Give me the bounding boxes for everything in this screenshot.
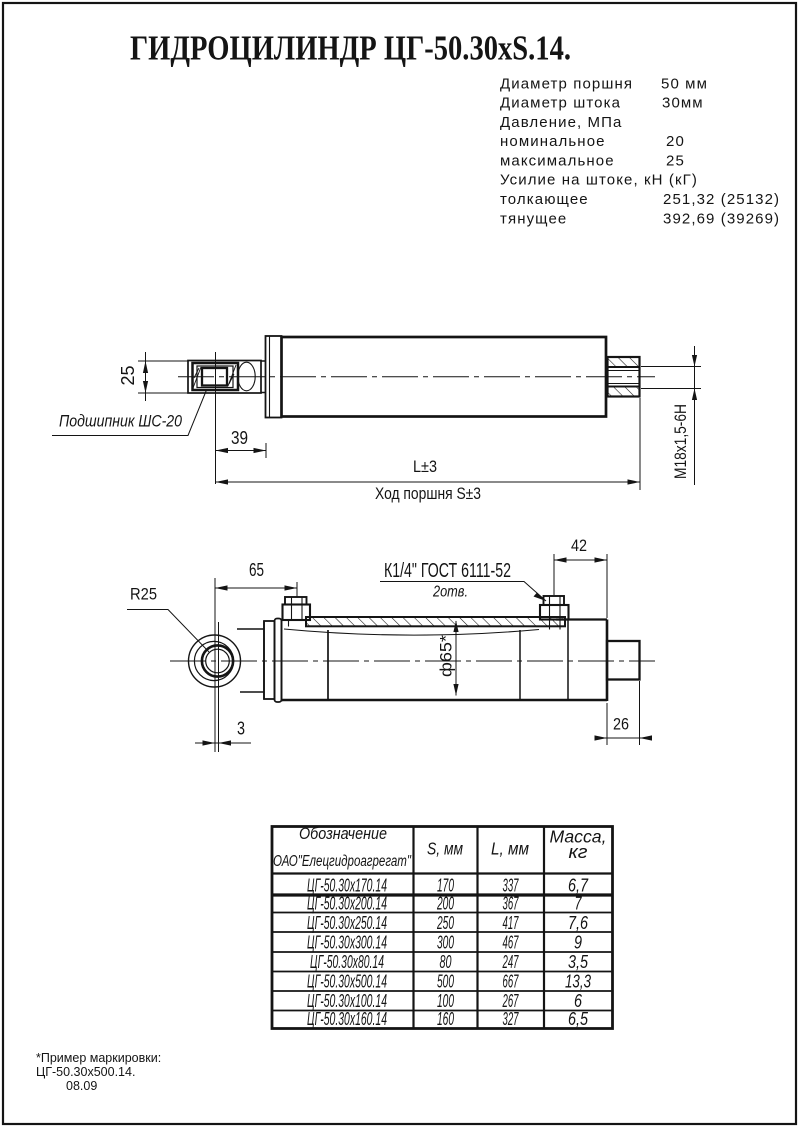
svg-text:300: 300 <box>437 933 454 953</box>
svg-text:ГИДРОЦИЛИНДР ЦГ-50.30xS.14.: ГИДРОЦИЛИНДР ЦГ-50.30xS.14. <box>130 29 571 68</box>
svg-text:*Пример маркировки:: *Пример маркировки: <box>36 1051 161 1065</box>
svg-text:R25: R25 <box>130 585 157 604</box>
svg-text:максимальное: максимальное <box>500 153 615 170</box>
svg-text:ЦГ-50.30х170.14: ЦГ-50.30х170.14 <box>307 876 387 896</box>
svg-text:3,5: 3,5 <box>568 952 589 972</box>
svg-text:6,7: 6,7 <box>568 876 589 896</box>
svg-text:392,69 (39269): 392,69 (39269) <box>663 210 780 227</box>
svg-text:ЦГ-50.30х80.14: ЦГ-50.30х80.14 <box>310 952 384 972</box>
svg-text:667: 667 <box>503 972 520 992</box>
svg-text:М18х1,5-6Н: М18х1,5-6Н <box>672 404 690 479</box>
svg-text:Подшипник ШС-20: Подшипник ШС-20 <box>59 413 183 431</box>
svg-text:100: 100 <box>437 991 454 1011</box>
svg-text:6: 6 <box>574 991 583 1011</box>
svg-text:Диаметр штока: Диаметр штока <box>500 95 621 112</box>
svg-text:467: 467 <box>503 933 520 953</box>
svg-text:6,5: 6,5 <box>568 1009 589 1029</box>
svg-text:417: 417 <box>503 913 520 933</box>
svg-text:200: 200 <box>436 894 454 914</box>
svg-text:20: 20 <box>666 133 685 150</box>
svg-text:65: 65 <box>249 560 264 580</box>
svg-text:Диаметр поршня: Диаметр поршня <box>500 76 633 93</box>
svg-text:Давление, МПа: Давление, МПа <box>500 114 622 131</box>
svg-text:кг: кг <box>569 842 588 862</box>
svg-text:25: 25 <box>666 153 685 170</box>
svg-text:L, мм: L, мм <box>491 839 529 859</box>
svg-text:251,32 (25132): 251,32 (25132) <box>663 191 780 208</box>
svg-text:30мм: 30мм <box>662 95 704 112</box>
svg-text:50 мм: 50 мм <box>661 76 708 93</box>
svg-text:тянущее: тянущее <box>500 210 567 227</box>
svg-text:ф65*: ф65* <box>438 634 456 677</box>
svg-text:25: 25 <box>118 366 138 386</box>
svg-text:толкающее: толкающее <box>500 191 589 208</box>
svg-text:Ход поршня S±3: Ход поршня S±3 <box>375 484 481 503</box>
svg-text:160: 160 <box>437 1009 454 1029</box>
svg-text:ЦГ-50.30х100.14: ЦГ-50.30х100.14 <box>307 991 387 1011</box>
svg-text:2отв.: 2отв. <box>432 584 468 601</box>
svg-text:ЦГ-50.30х500.14: ЦГ-50.30х500.14 <box>307 972 387 992</box>
svg-text:S, мм: S, мм <box>427 839 463 859</box>
svg-text:ЦГ-50.30х160.14: ЦГ-50.30х160.14 <box>307 1009 387 1029</box>
svg-text:ЦГ-50.30х200.14: ЦГ-50.30х200.14 <box>307 894 387 914</box>
svg-text:ЦГ-50.30х300.14: ЦГ-50.30х300.14 <box>307 933 387 953</box>
svg-text:Усилие на штоке, кН (кГ): Усилие на штоке, кН (кГ) <box>500 172 698 189</box>
svg-text:367: 367 <box>503 894 520 914</box>
svg-text:80: 80 <box>440 952 452 972</box>
svg-text:337: 337 <box>503 876 520 896</box>
svg-text:номинальное: номинальное <box>500 133 606 150</box>
svg-text:9: 9 <box>574 933 582 953</box>
svg-text:ЦГ-50.30х250.14: ЦГ-50.30х250.14 <box>307 913 387 933</box>
svg-text:26: 26 <box>613 715 629 734</box>
svg-text:К1/4" ГОСТ 6111-52: К1/4" ГОСТ 6111-52 <box>384 560 511 582</box>
svg-text:500: 500 <box>437 972 454 992</box>
svg-text:7,6: 7,6 <box>568 913 589 933</box>
svg-text:L±3: L±3 <box>413 457 437 476</box>
svg-text:267: 267 <box>502 991 519 1011</box>
svg-text:42: 42 <box>571 536 587 555</box>
svg-text:ЦГ-50.30х500.14.: ЦГ-50.30х500.14. <box>36 1065 135 1079</box>
svg-text:39: 39 <box>231 428 248 448</box>
svg-text:3: 3 <box>237 719 245 739</box>
svg-text:250: 250 <box>436 913 454 933</box>
svg-text:7: 7 <box>575 894 583 914</box>
svg-text:327: 327 <box>503 1009 520 1029</box>
svg-text:170: 170 <box>437 876 454 896</box>
svg-text:ОАО"Елецгидроагрегат": ОАО"Елецгидроагрегат" <box>273 853 412 870</box>
svg-text:13,3: 13,3 <box>565 972 591 992</box>
svg-text:Обозначение: Обозначение <box>299 825 387 843</box>
svg-text:247: 247 <box>502 952 519 972</box>
svg-text:08.09: 08.09 <box>66 1079 97 1093</box>
